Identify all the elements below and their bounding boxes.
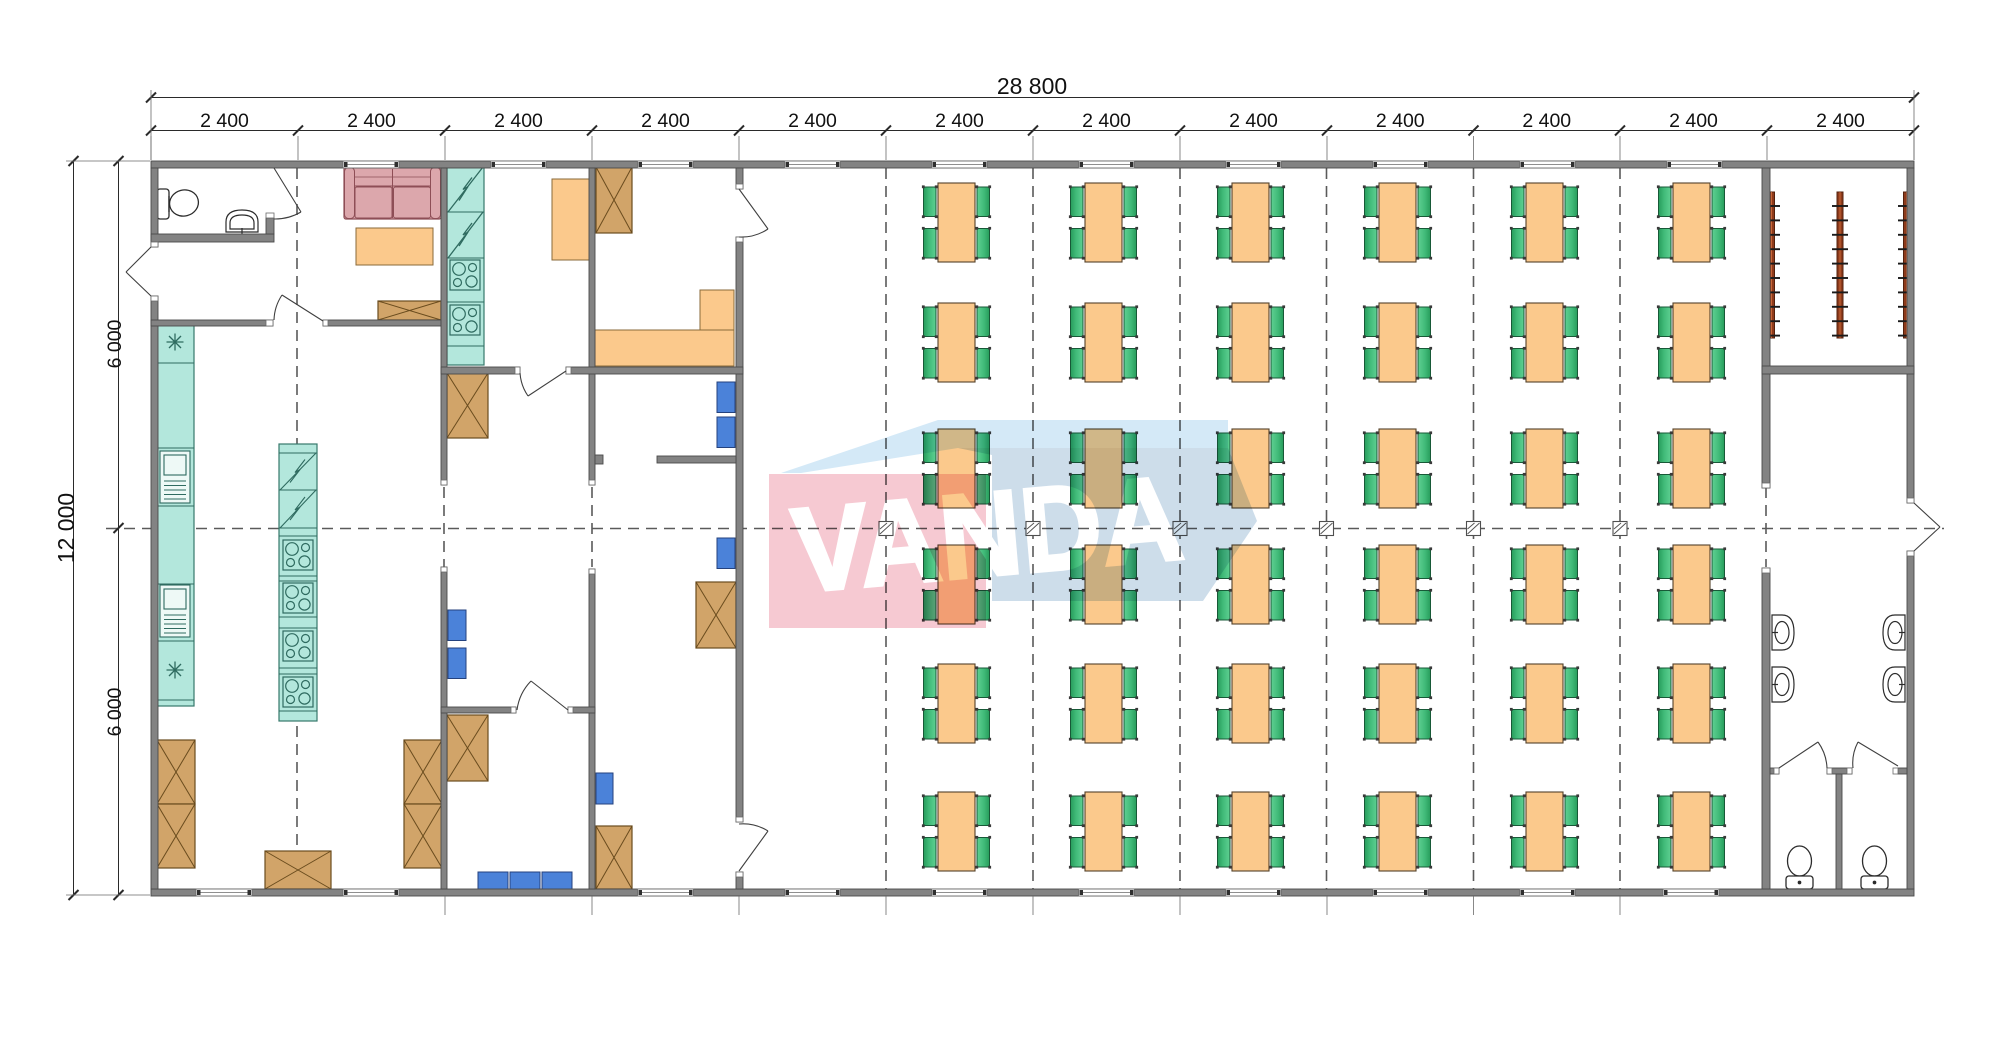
svg-text:2 400: 2 400 bbox=[200, 110, 249, 132]
svg-text:2 400: 2 400 bbox=[347, 110, 396, 132]
svg-text:2 400: 2 400 bbox=[935, 110, 984, 132]
svg-text:12 000: 12 000 bbox=[53, 493, 79, 563]
svg-text:2 400: 2 400 bbox=[1816, 110, 1865, 132]
svg-text:6 000: 6 000 bbox=[104, 319, 126, 368]
svg-text:2 400: 2 400 bbox=[494, 110, 543, 132]
svg-text:2 400: 2 400 bbox=[1229, 110, 1278, 132]
svg-text:6 000: 6 000 bbox=[104, 687, 126, 736]
svg-text:2 400: 2 400 bbox=[641, 110, 690, 132]
svg-text:2 400: 2 400 bbox=[788, 110, 837, 132]
svg-text:2 400: 2 400 bbox=[1376, 110, 1425, 132]
svg-text:2 400: 2 400 bbox=[1669, 110, 1718, 132]
svg-text:28 800: 28 800 bbox=[997, 73, 1067, 99]
svg-text:2 400: 2 400 bbox=[1082, 110, 1131, 132]
svg-text:2 400: 2 400 bbox=[1522, 110, 1571, 132]
